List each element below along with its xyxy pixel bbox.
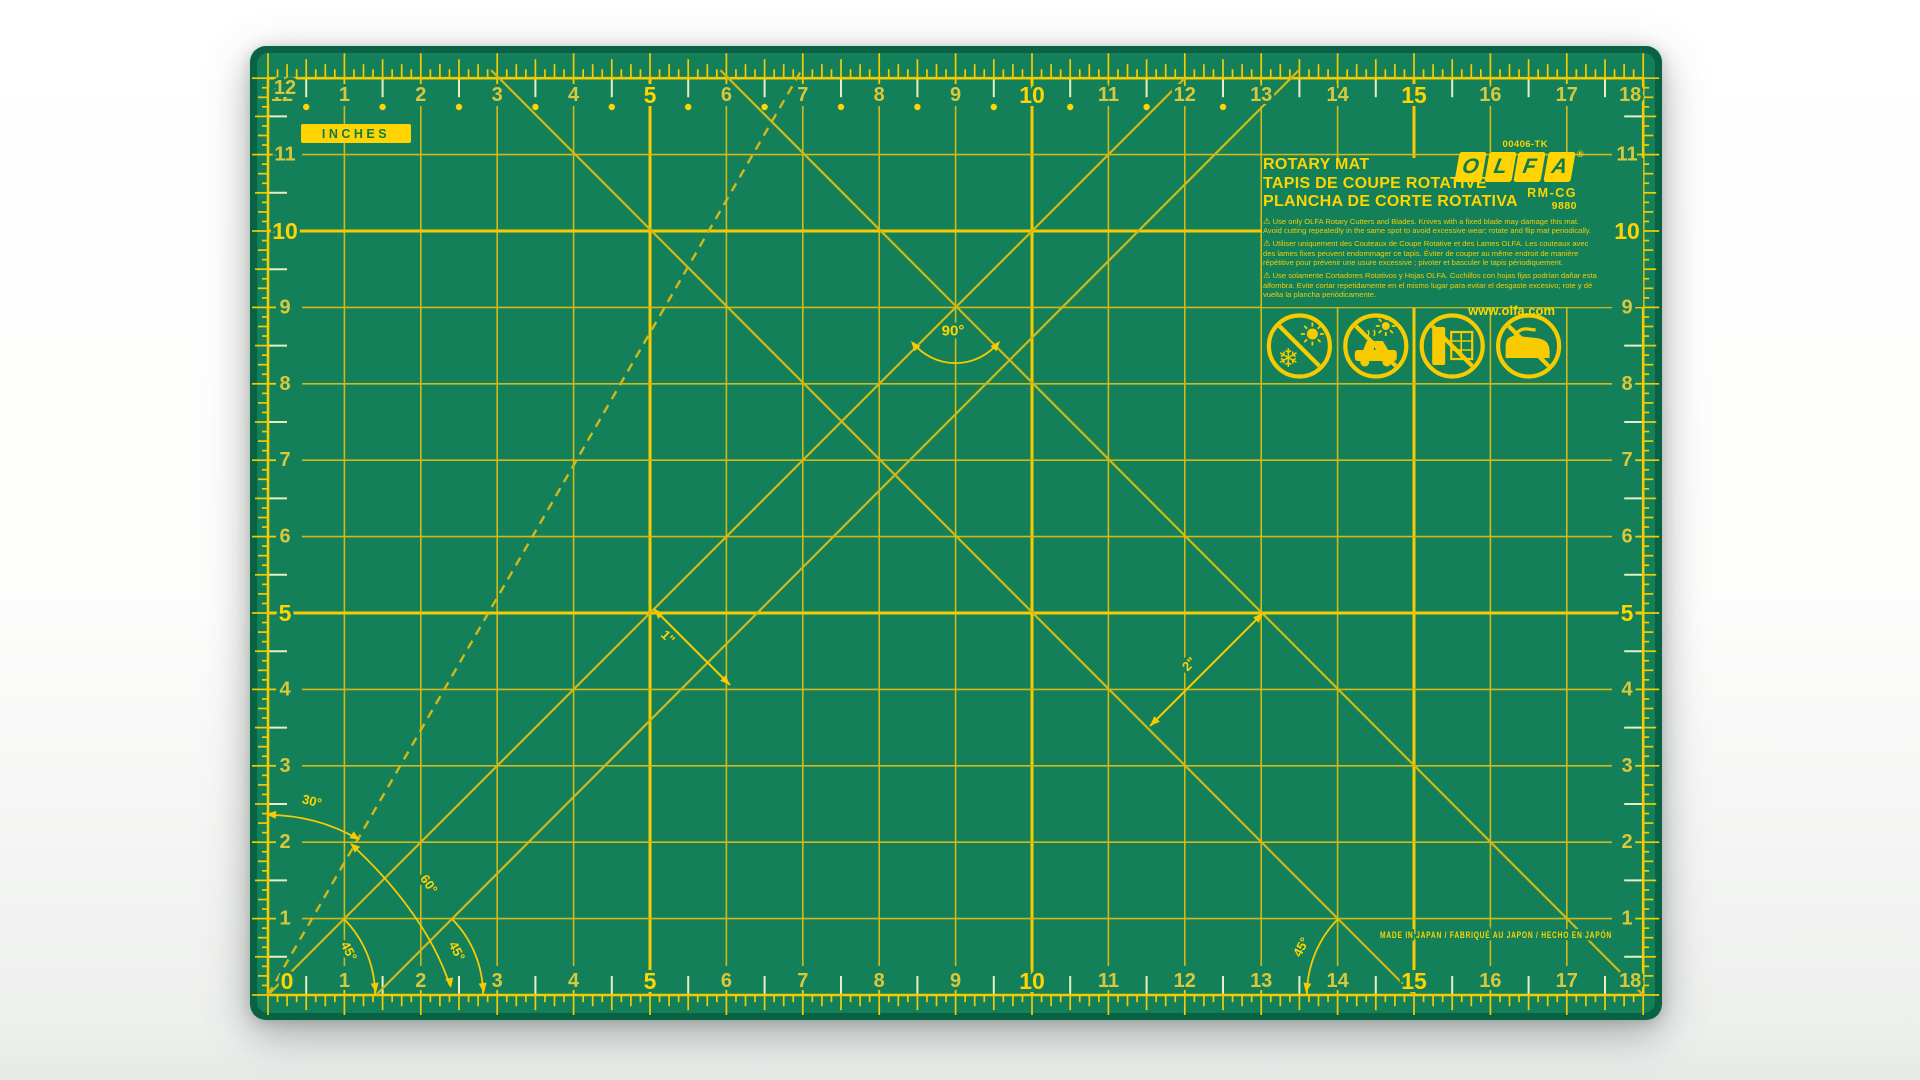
svg-text:4: 4 xyxy=(568,84,580,106)
cutting-mat: 1212345678910111213141516171801234567891… xyxy=(0,0,1920,1080)
svg-text:9: 9 xyxy=(279,296,290,318)
svg-text:6: 6 xyxy=(279,526,290,548)
svg-text:12: 12 xyxy=(1174,84,1196,106)
logo-letter-o: O xyxy=(1454,152,1486,182)
svg-text:16: 16 xyxy=(1479,970,1501,992)
svg-text:13: 13 xyxy=(1250,970,1272,992)
svg-text:2: 2 xyxy=(415,84,426,106)
logo-letter-l: L xyxy=(1484,152,1516,182)
svg-text:16: 16 xyxy=(1479,84,1501,106)
svg-text:11: 11 xyxy=(1616,144,1637,166)
svg-text:MADE IN JAPAN / FABRIQUÉ AU JA: MADE IN JAPAN / FABRIQUÉ AU JAPON / HECH… xyxy=(1380,929,1612,940)
svg-text:4: 4 xyxy=(1621,678,1633,700)
svg-text:14: 14 xyxy=(1326,84,1349,106)
svg-text:9: 9 xyxy=(950,84,961,106)
model-number: 9880 xyxy=(1477,200,1577,212)
product-photo-olfa-cutting-mat: 1212345678910111213141516171801234567891… xyxy=(0,0,1920,1080)
svg-text:9: 9 xyxy=(950,970,961,992)
svg-text:10: 10 xyxy=(1614,218,1640,244)
cutting-mat-graphic: 1212345678910111213141516171801234567891… xyxy=(0,0,1920,1080)
svg-text:5: 5 xyxy=(279,600,292,626)
svg-text:18: 18 xyxy=(1619,970,1641,992)
svg-text:6: 6 xyxy=(1621,526,1632,548)
svg-text:8: 8 xyxy=(279,373,290,395)
svg-text:7: 7 xyxy=(279,449,290,471)
svg-text:1: 1 xyxy=(339,84,350,106)
svg-text:7: 7 xyxy=(797,970,808,992)
svg-text:17: 17 xyxy=(1556,970,1578,992)
svg-text:12: 12 xyxy=(274,77,296,99)
svg-text:2: 2 xyxy=(279,831,290,853)
svg-text:10: 10 xyxy=(272,218,298,244)
svg-text:8: 8 xyxy=(1621,373,1632,395)
warning-es: ⚠Use solamente Cortadores Rotativos y Ho… xyxy=(1263,271,1599,300)
svg-text:2: 2 xyxy=(1621,831,1632,853)
svg-text:6: 6 xyxy=(721,970,732,992)
svg-text:❄: ❄ xyxy=(1278,344,1300,374)
logo-letter-f: F xyxy=(1513,152,1545,182)
svg-text:8: 8 xyxy=(874,84,885,106)
svg-text:10: 10 xyxy=(1019,968,1045,994)
svg-text:1: 1 xyxy=(339,970,350,992)
warning-triangle-icon: ⚠ xyxy=(1263,270,1271,280)
svg-text:4: 4 xyxy=(279,678,291,700)
svg-text:10: 10 xyxy=(1019,82,1045,108)
svg-text:7: 7 xyxy=(1621,449,1632,471)
svg-text:15: 15 xyxy=(1401,968,1427,994)
svg-text:2: 2 xyxy=(415,970,426,992)
svg-text:9: 9 xyxy=(1621,296,1632,318)
svg-text:5: 5 xyxy=(1621,600,1634,626)
warning-triangle-icon: ⚠ xyxy=(1263,216,1271,226)
made-in-label: MADE IN JAPAN / FABRIQUÉ AU JAPON / HECH… xyxy=(1380,929,1612,940)
svg-text:14: 14 xyxy=(1326,970,1349,992)
olfa-logo: O L F A ® xyxy=(1457,152,1584,182)
svg-text:13: 13 xyxy=(1250,84,1272,106)
warnings: ⚠Use only OLFA Rotary Cutters and Blades… xyxy=(1263,217,1599,301)
svg-text:8: 8 xyxy=(874,970,885,992)
svg-text:90°: 90° xyxy=(942,323,965,340)
sku-code: 00406-TK xyxy=(1448,139,1548,150)
svg-text:11: 11 xyxy=(274,144,295,166)
svg-text:1: 1 xyxy=(1621,908,1632,930)
svg-text:3: 3 xyxy=(279,755,290,777)
svg-text:11: 11 xyxy=(1098,84,1119,106)
svg-text:18: 18 xyxy=(1619,84,1641,106)
svg-text:7: 7 xyxy=(797,84,808,106)
svg-text:5: 5 xyxy=(644,82,657,108)
svg-text:15: 15 xyxy=(1401,82,1427,108)
warning-en: ⚠Use only OLFA Rotary Cutters and Blades… xyxy=(1263,217,1599,236)
warning-fr: ⚠Utiliser uniquement des Couteaux de Cou… xyxy=(1263,239,1599,268)
registered-trademark: ® xyxy=(1577,149,1584,182)
svg-text:3: 3 xyxy=(492,970,503,992)
svg-text:17: 17 xyxy=(1556,84,1578,106)
warning-triangle-icon: ⚠ xyxy=(1263,238,1271,248)
units-badge: INCHES xyxy=(301,124,411,143)
svg-text:1: 1 xyxy=(279,908,290,930)
svg-text:5: 5 xyxy=(644,968,657,994)
svg-text:0: 0 xyxy=(281,968,294,994)
svg-text:6: 6 xyxy=(721,84,732,106)
svg-text:4: 4 xyxy=(568,970,580,992)
svg-text:3: 3 xyxy=(1621,755,1632,777)
model-code: RM-CG xyxy=(1477,186,1577,200)
logo-letter-a: A xyxy=(1543,152,1575,182)
website-url: www.olfa.com xyxy=(1263,303,1555,318)
svg-text:11: 11 xyxy=(1098,970,1119,992)
svg-text:3: 3 xyxy=(492,84,503,106)
svg-text:12: 12 xyxy=(1174,970,1196,992)
